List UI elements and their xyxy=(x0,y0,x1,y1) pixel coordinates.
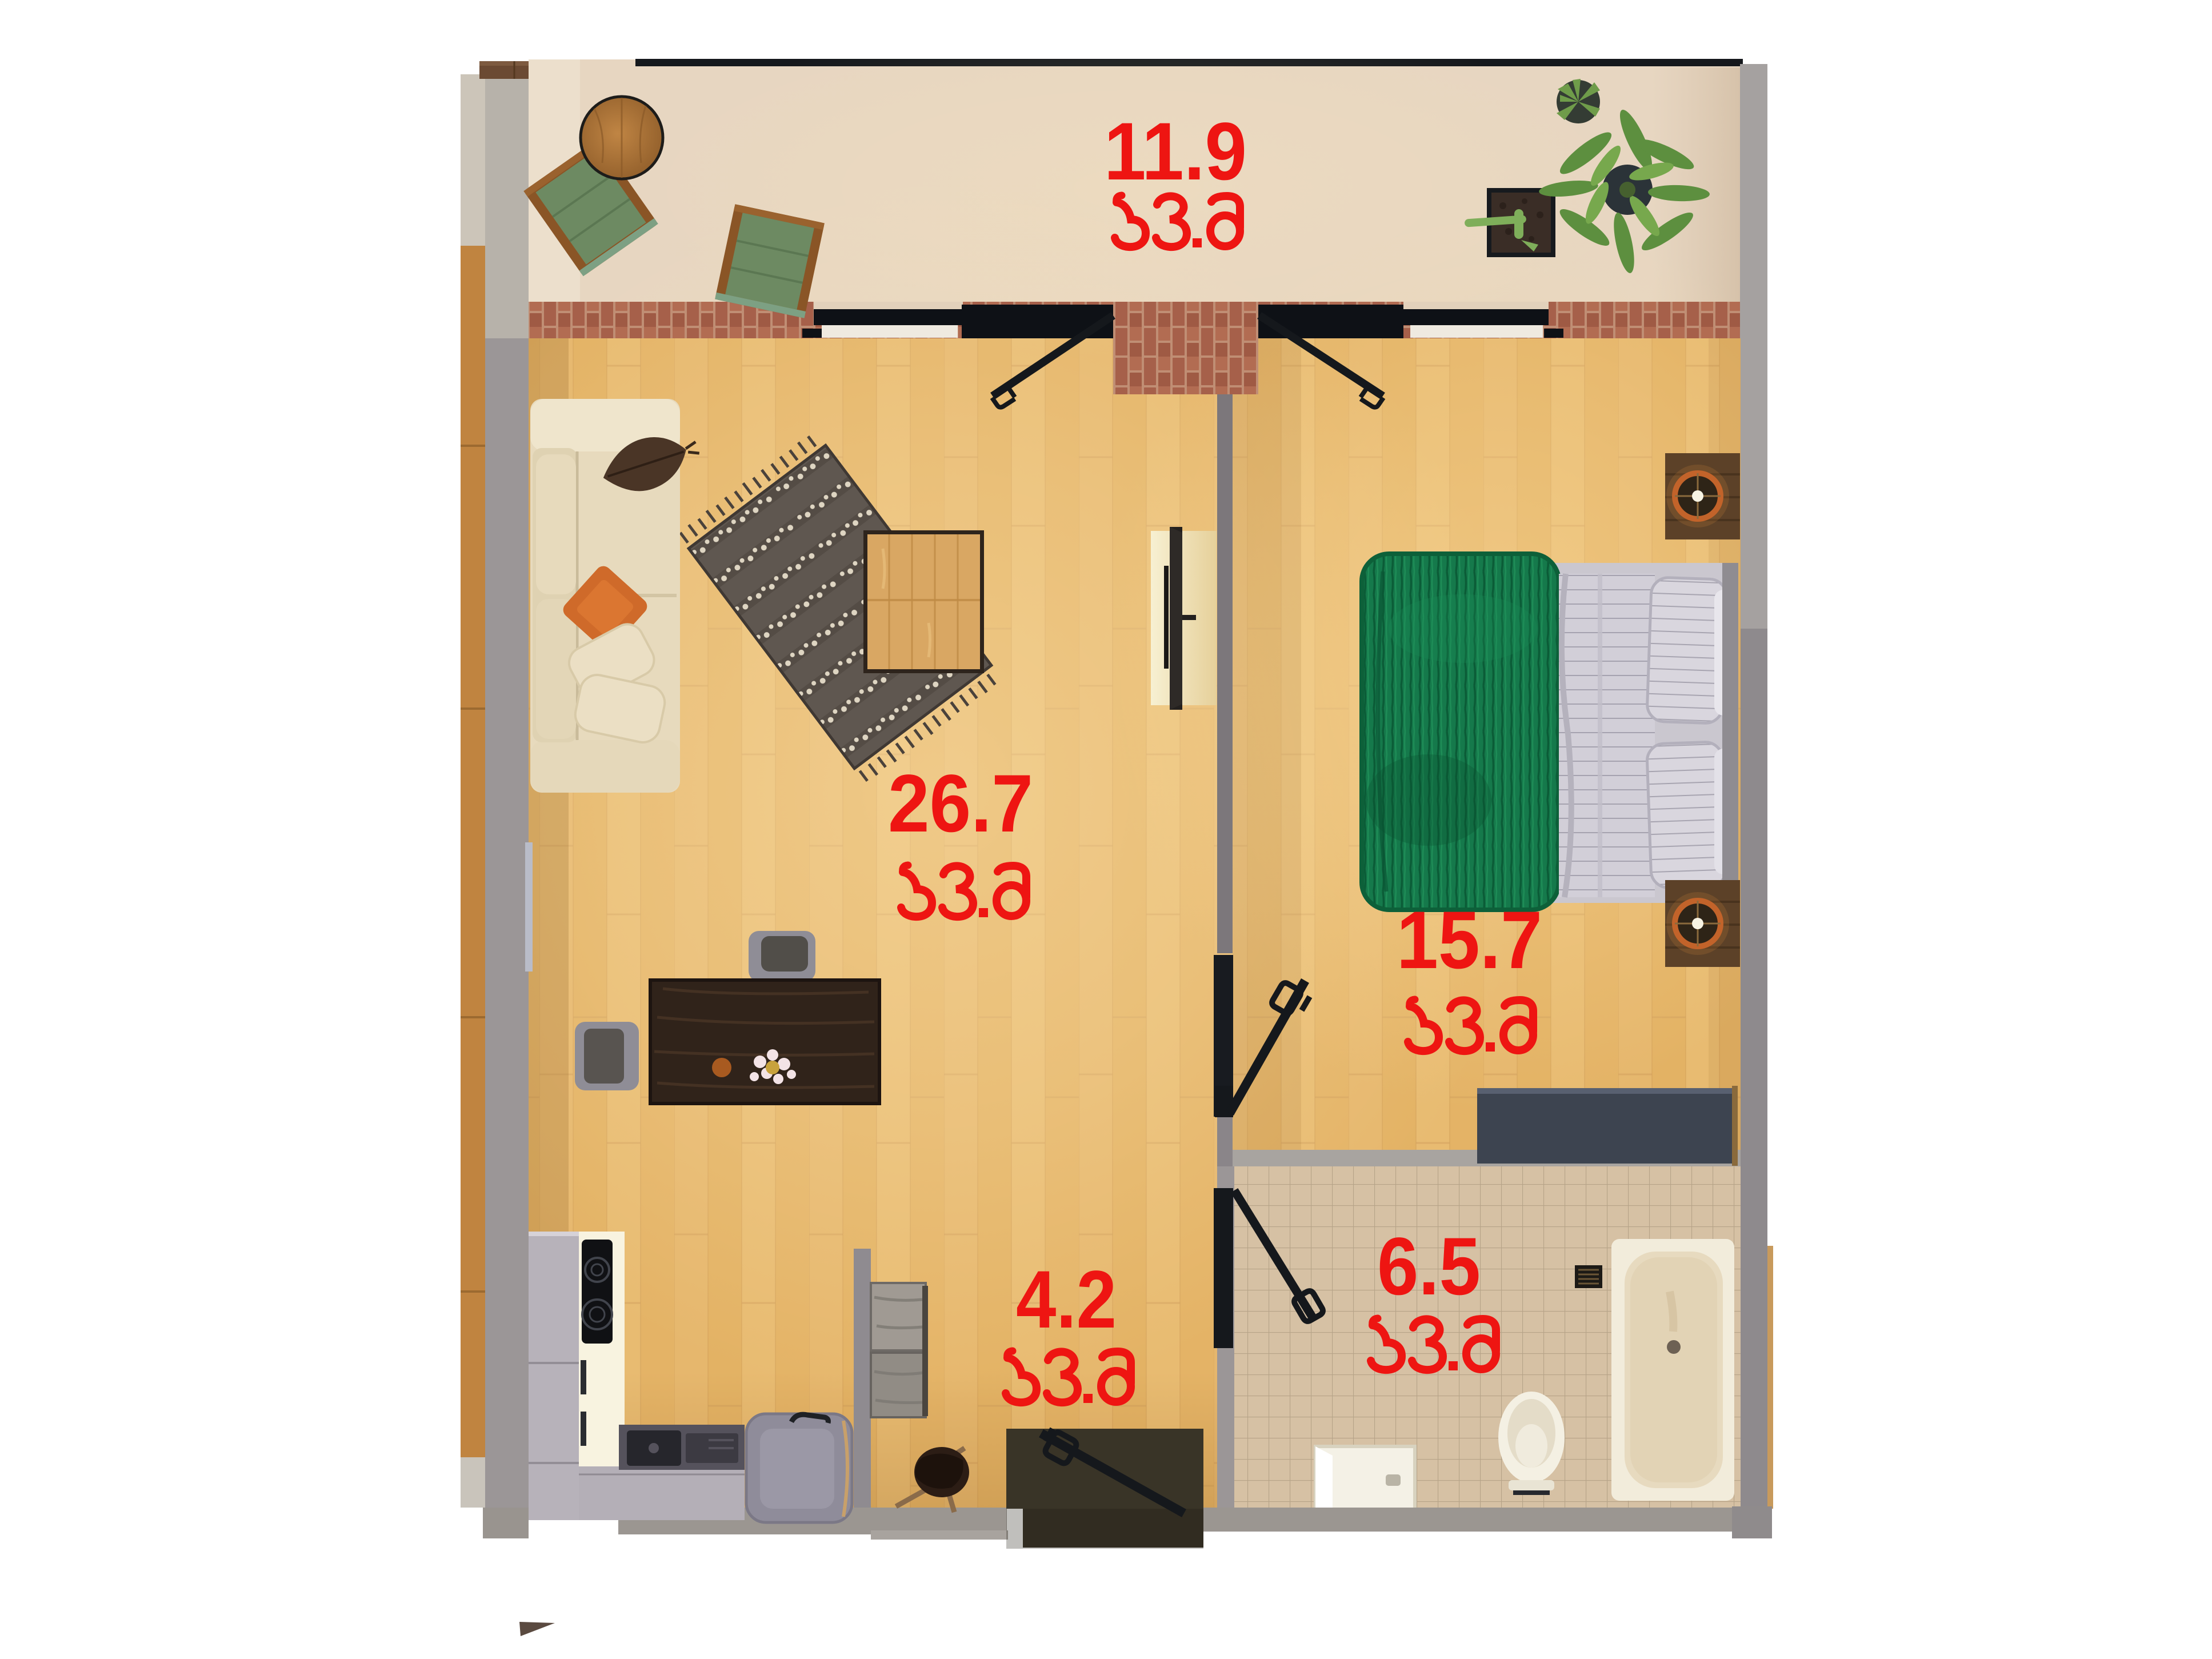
svg-text:11.9: 11.9 xyxy=(1104,106,1247,197)
svg-text:4.2: 4.2 xyxy=(1016,1254,1117,1345)
svg-text:15.7: 15.7 xyxy=(1397,895,1542,986)
svg-text:26.7: 26.7 xyxy=(888,758,1033,849)
svg-text:6.5: 6.5 xyxy=(1377,1221,1481,1312)
